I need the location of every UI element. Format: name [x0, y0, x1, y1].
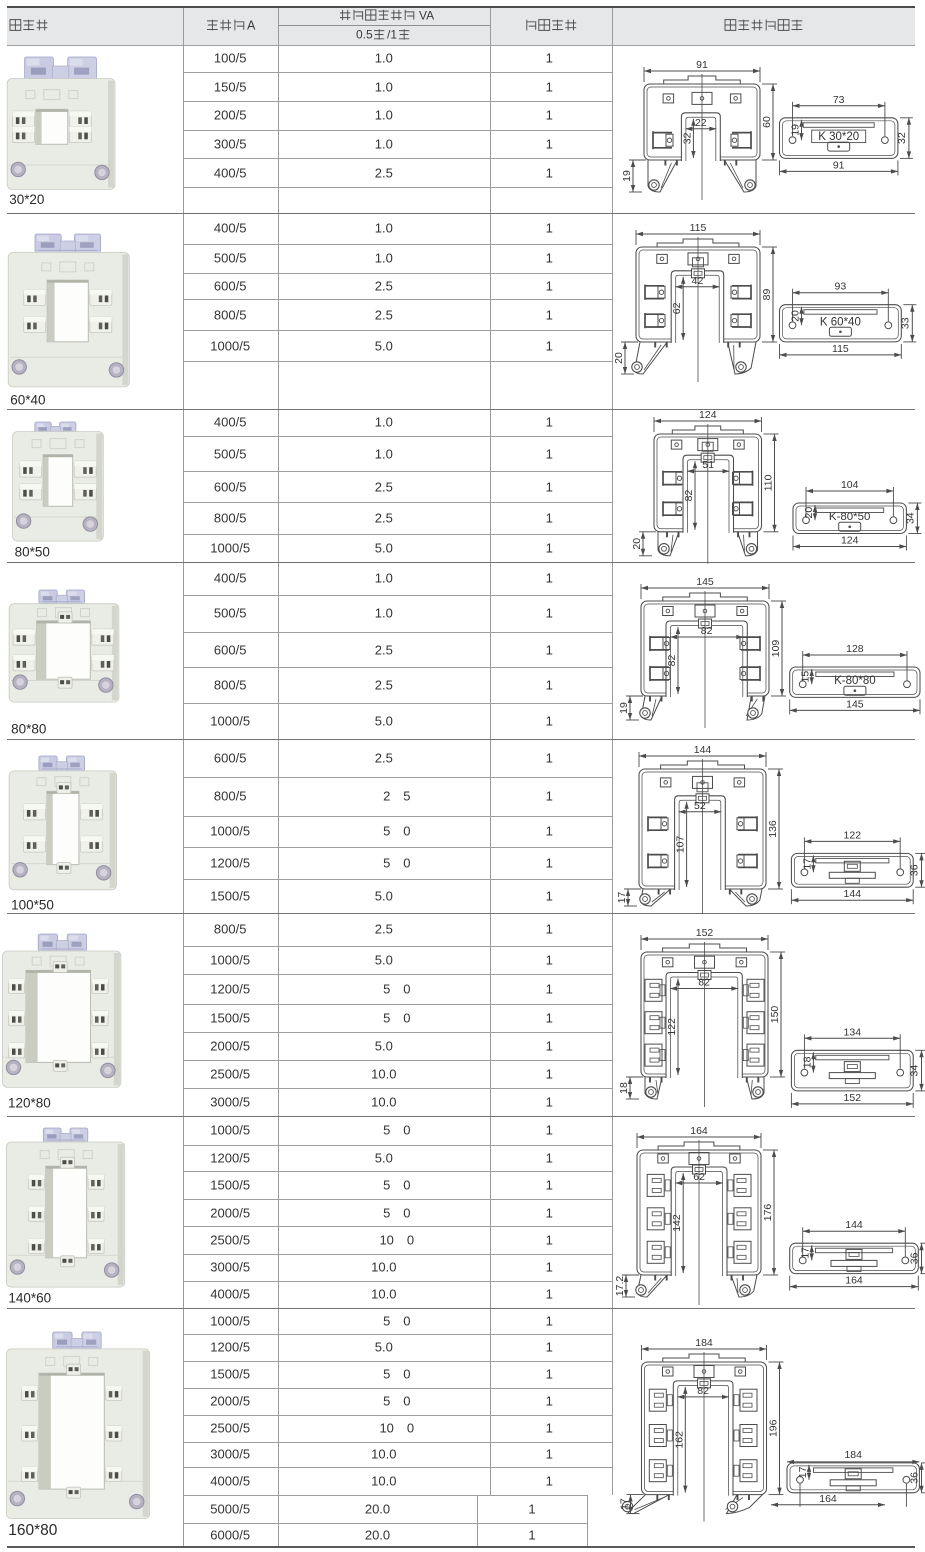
- svg-text:140*60: 140*60: [8, 1290, 51, 1305]
- svg-text:33: 33: [899, 317, 911, 329]
- svg-text:19: 19: [621, 170, 633, 182]
- svg-text:136: 136: [767, 820, 779, 838]
- svg-text:17: 17: [801, 858, 813, 870]
- svg-text:80*50: 80*50: [15, 544, 50, 559]
- svg-text:80*80: 80*80: [11, 721, 46, 736]
- svg-text:89: 89: [761, 289, 773, 301]
- svg-text:93: 93: [835, 281, 847, 293]
- svg-text:73: 73: [833, 94, 845, 106]
- svg-text:K 30*20: K 30*20: [818, 131, 859, 143]
- svg-text:82: 82: [684, 490, 695, 502]
- svg-text:34: 34: [909, 1065, 921, 1077]
- svg-text:82: 82: [666, 655, 678, 667]
- svg-text:164: 164: [690, 1125, 708, 1137]
- svg-text:42: 42: [692, 275, 704, 287]
- svg-text:104: 104: [841, 480, 859, 491]
- svg-text:K-80*50: K-80*50: [829, 511, 871, 523]
- svg-text:20: 20: [804, 507, 815, 519]
- svg-text:34: 34: [905, 512, 916, 524]
- svg-text:30*20: 30*20: [9, 192, 44, 207]
- svg-text:184: 184: [844, 1450, 862, 1461]
- svg-text:18: 18: [801, 1056, 813, 1068]
- svg-text:124: 124: [841, 535, 859, 546]
- svg-text:62: 62: [671, 302, 683, 314]
- svg-text:36: 36: [909, 1252, 921, 1264]
- svg-text:184: 184: [695, 1338, 713, 1349]
- svg-text:36: 36: [909, 1472, 920, 1484]
- svg-text:17: 17: [620, 1498, 631, 1510]
- svg-text:164: 164: [819, 1494, 837, 1505]
- svg-text:20: 20: [613, 352, 625, 364]
- svg-text:109: 109: [770, 640, 782, 658]
- svg-text:122: 122: [666, 1018, 678, 1036]
- svg-text:124: 124: [699, 410, 717, 421]
- svg-text:107: 107: [675, 835, 687, 853]
- svg-text:160*80: 160*80: [8, 1522, 57, 1539]
- svg-text:20: 20: [790, 310, 802, 322]
- svg-text:19: 19: [618, 702, 630, 714]
- svg-text:0.5: 0.5: [356, 28, 373, 42]
- svg-text:162: 162: [674, 1431, 685, 1449]
- svg-text:15: 15: [800, 671, 812, 683]
- svg-text:134: 134: [844, 1026, 862, 1038]
- svg-text:17: 17: [616, 892, 628, 904]
- svg-text:110: 110: [763, 474, 774, 491]
- svg-text:60: 60: [761, 116, 773, 128]
- svg-text:K 60*40: K 60*40: [820, 316, 861, 328]
- svg-text:91: 91: [696, 59, 708, 71]
- svg-text:145: 145: [696, 576, 714, 588]
- svg-text:196: 196: [768, 1419, 779, 1437]
- svg-text:20: 20: [632, 538, 643, 550]
- svg-text:115: 115: [832, 343, 849, 355]
- svg-text:32: 32: [681, 132, 693, 144]
- svg-text:82: 82: [698, 977, 710, 989]
- svg-text:A: A: [247, 19, 256, 33]
- svg-text:115: 115: [690, 222, 707, 234]
- svg-text:100*50: 100*50: [11, 897, 54, 912]
- svg-text:18: 18: [618, 1082, 630, 1094]
- svg-text:152: 152: [844, 1092, 862, 1104]
- svg-text:176: 176: [762, 1204, 774, 1222]
- svg-text:36: 36: [909, 864, 921, 876]
- svg-text:22: 22: [695, 117, 707, 129]
- svg-text:VA: VA: [419, 9, 434, 23]
- svg-text:120*80: 120*80: [8, 1095, 51, 1110]
- svg-text:52: 52: [694, 800, 706, 812]
- svg-text:62: 62: [693, 1171, 705, 1183]
- svg-text:32: 32: [896, 132, 908, 144]
- svg-text:128: 128: [846, 643, 864, 655]
- svg-text:145: 145: [846, 698, 864, 710]
- svg-text:144: 144: [845, 1219, 863, 1231]
- svg-text:142: 142: [671, 1214, 683, 1232]
- svg-text:17: 17: [798, 1466, 809, 1478]
- svg-text:91: 91: [833, 159, 845, 171]
- svg-text:60*40: 60*40: [10, 392, 45, 407]
- svg-text:144: 144: [844, 888, 862, 900]
- svg-text:164: 164: [845, 1275, 863, 1287]
- svg-text:17: 17: [800, 1247, 812, 1259]
- svg-text:K-80*80: K-80*80: [834, 675, 876, 687]
- svg-text:82: 82: [697, 1386, 709, 1397]
- svg-text:122: 122: [844, 829, 862, 841]
- svg-text:82: 82: [701, 625, 713, 637]
- svg-text:19: 19: [790, 124, 802, 136]
- svg-text:17.2: 17.2: [614, 1276, 626, 1297]
- svg-text:152: 152: [696, 927, 714, 939]
- svg-text:150: 150: [769, 1006, 781, 1024]
- svg-text:51: 51: [702, 460, 714, 471]
- svg-text:144: 144: [694, 744, 712, 756]
- svg-text:/1: /1: [387, 28, 397, 42]
